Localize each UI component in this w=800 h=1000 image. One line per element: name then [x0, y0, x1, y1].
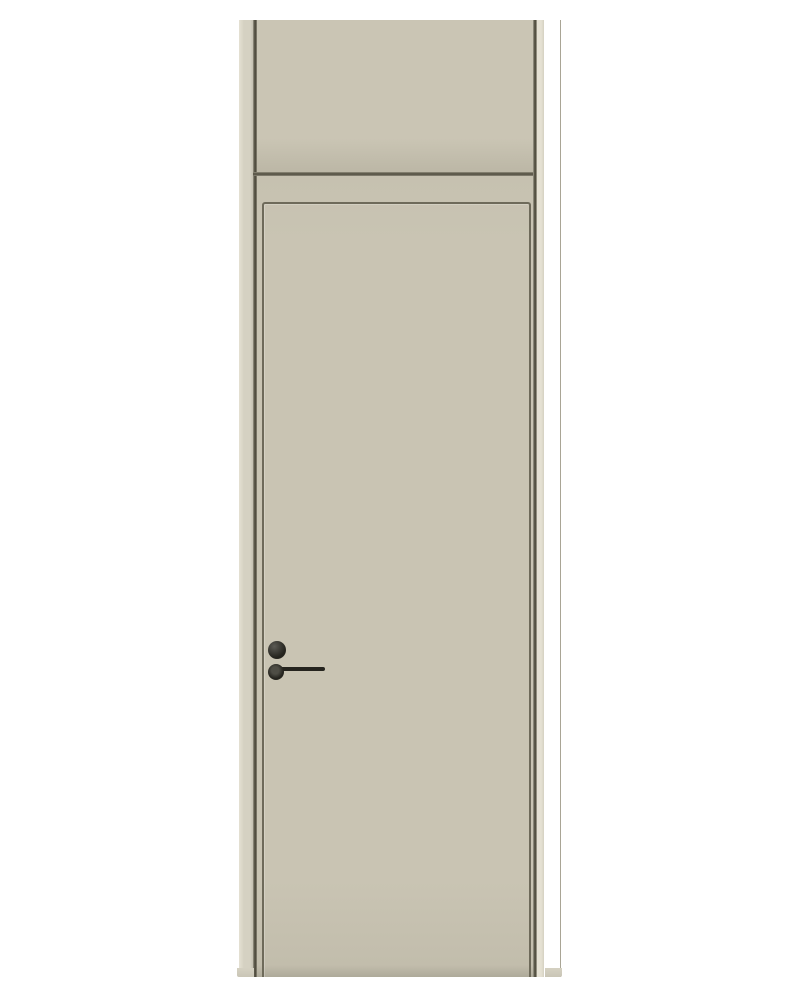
left-jamb-base-flare — [237, 968, 254, 977]
lever-handle-rose — [268, 641, 286, 659]
door-leaf — [257, 176, 533, 977]
transom-panel — [257, 20, 533, 172]
leaf-edge-groove — [262, 202, 531, 977]
door-frame-right-jamb — [544, 20, 561, 977]
right-jamb-base-flare — [545, 968, 562, 977]
privacy-lock-rose — [268, 664, 284, 680]
lever-handle-bar — [277, 667, 325, 671]
right-jamb-highlight — [537, 20, 544, 977]
door-frame-left-jamb — [239, 20, 253, 977]
door-unit — [239, 20, 561, 977]
product-photo-background — [0, 0, 800, 1000]
